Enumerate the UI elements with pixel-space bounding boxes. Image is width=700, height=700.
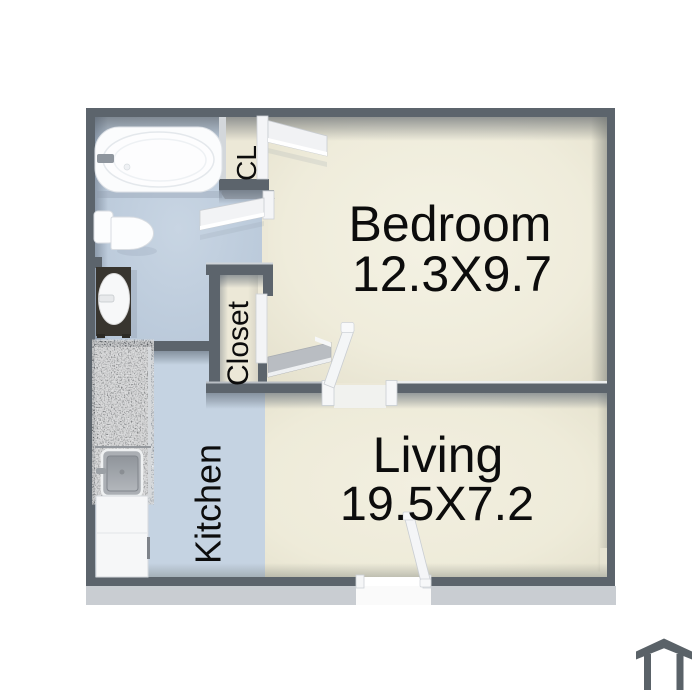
svg-text:Living: Living: [373, 427, 504, 483]
svg-text:19.5X7.2: 19.5X7.2: [340, 477, 534, 531]
svg-text:12.3X9.7: 12.3X9.7: [352, 246, 552, 302]
svg-text:Kitchen: Kitchen: [188, 444, 229, 564]
svg-text:Bedroom: Bedroom: [349, 196, 552, 252]
svg-text:Closet: Closet: [222, 300, 255, 386]
svg-text:CL: CL: [231, 145, 262, 181]
